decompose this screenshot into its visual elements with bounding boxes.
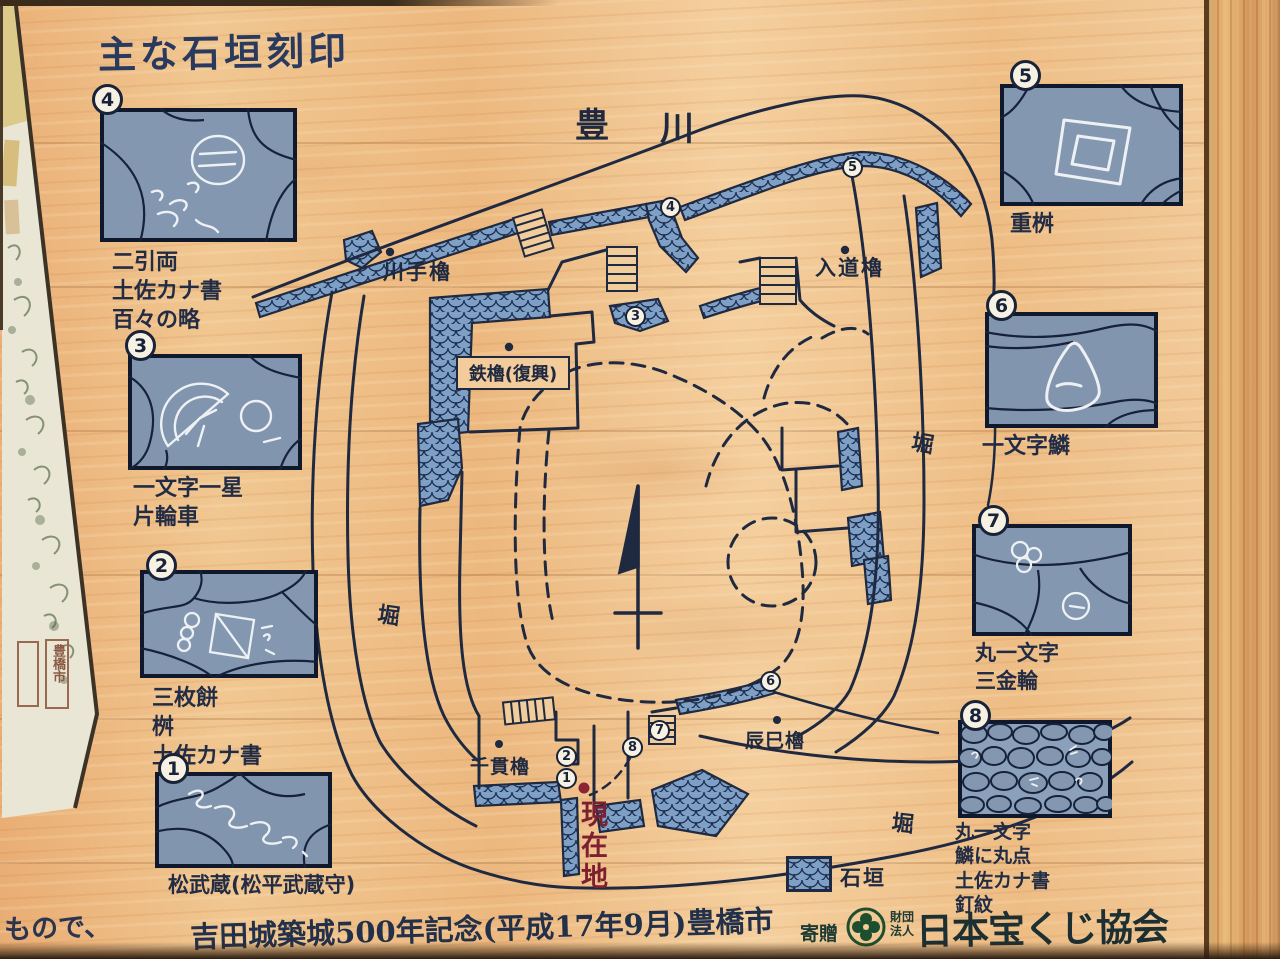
panel-4-label: 土佐カナ書 bbox=[112, 277, 222, 306]
board-bottom-edge bbox=[0, 942, 1280, 959]
panel-2-number: 2 bbox=[146, 550, 177, 581]
map-marker-5: 5 bbox=[842, 157, 863, 178]
panel-7-stone bbox=[972, 524, 1132, 636]
stairs-icon bbox=[503, 697, 555, 724]
tatsumi-tower-label: 辰巳櫓 bbox=[745, 726, 805, 753]
adjacent-sign-seal-text: 豊橋市 bbox=[48, 644, 67, 683]
panel-7-number: 7 bbox=[978, 505, 1009, 536]
stairs-icon bbox=[760, 258, 796, 304]
kurogane-tower-dot bbox=[505, 343, 513, 351]
adjacent-sign-edge bbox=[0, 0, 110, 860]
nyudo-tower-label: 入道櫓 bbox=[815, 252, 884, 282]
kurogane-tower-labelbox: 鉄櫓(復興) bbox=[456, 356, 570, 390]
river-name-char2: 川 bbox=[660, 101, 694, 150]
north-arrow-icon bbox=[615, 486, 661, 648]
map-marker-8: 8 bbox=[622, 737, 643, 758]
panel-2-label: 三枚餅 bbox=[152, 684, 262, 713]
stairs-icon bbox=[607, 247, 637, 291]
adjacent-text-fragment: もので、 bbox=[3, 904, 111, 947]
kawate-tower-label: 川手櫓 bbox=[383, 256, 452, 286]
panel-5-label: 重桝 bbox=[1010, 210, 1054, 239]
current-location-label: 現在地 bbox=[572, 800, 611, 893]
foundation-line2: 法人 bbox=[890, 925, 914, 939]
map-marker-3: 3 bbox=[625, 306, 646, 327]
panel-7-label: 三金輪 bbox=[975, 668, 1059, 696]
panel-3-label: 一文字一星 bbox=[133, 474, 243, 503]
kurogane-tower-label: 鉄櫓(復興) bbox=[469, 360, 557, 386]
foundation-label: 財団 法人 bbox=[890, 911, 914, 939]
panel-1-stone bbox=[155, 772, 332, 868]
tatsumi-tower-dot bbox=[773, 716, 781, 724]
moat-label-bottom: 堀 bbox=[890, 805, 915, 839]
panel-2-label: 桝 bbox=[152, 713, 262, 742]
panel-4-number: 4 bbox=[92, 84, 123, 115]
page-title: 主な石垣刻印 bbox=[98, 20, 351, 79]
stairs-icon bbox=[513, 209, 553, 256]
panel-6-label: 一文字鱗 bbox=[982, 432, 1070, 461]
map-marker-2: 2 bbox=[556, 746, 577, 767]
sengan-tower-label: 千貫櫓 bbox=[470, 752, 530, 779]
river-name-char1: 豊 bbox=[575, 98, 609, 147]
panel-8-label: 鱗に丸点 bbox=[955, 844, 1050, 868]
wood-frame-right bbox=[1204, 0, 1280, 959]
panel-6-stone bbox=[985, 312, 1158, 428]
board-top-edge bbox=[0, 0, 560, 6]
map-marker-6: 6 bbox=[760, 671, 781, 692]
panel-6-number: 6 bbox=[986, 290, 1017, 321]
panel-4-stone bbox=[100, 108, 297, 242]
legend-stone-swatch bbox=[786, 856, 832, 896]
foundation-line1: 財団 bbox=[890, 911, 914, 925]
panel-5-number: 5 bbox=[1010, 60, 1041, 91]
legend-label: 石垣 bbox=[840, 862, 886, 892]
map-marker-7: 7 bbox=[649, 720, 670, 741]
sengan-tower-dot bbox=[495, 740, 503, 748]
panel-1-label: 松武蔵(松平武蔵守) bbox=[168, 872, 355, 900]
map-marker-1: 1 bbox=[556, 768, 577, 789]
panel-8-stone bbox=[958, 720, 1112, 818]
panel-1-number: 1 bbox=[158, 753, 189, 784]
moat-label-left: 堀 bbox=[376, 597, 402, 632]
kawate-tower-dot bbox=[386, 248, 394, 256]
panel-3-label: 片輪車 bbox=[133, 503, 243, 532]
panel-8-label: 丸一文字 bbox=[955, 820, 1050, 844]
current-location-dot bbox=[579, 783, 590, 794]
panel-8-number: 8 bbox=[960, 700, 991, 731]
map-marker-4: 4 bbox=[660, 197, 681, 218]
panel-4-label: 百々の略 bbox=[112, 306, 222, 335]
panel-4-label: 二引両 bbox=[112, 248, 222, 277]
panel-5-stone bbox=[1000, 84, 1183, 206]
panel-2-stone bbox=[140, 570, 318, 678]
panel-3-number: 3 bbox=[125, 330, 156, 361]
panel-7-label: 丸一文字 bbox=[975, 640, 1059, 668]
signboard-photo: 豊橋市 主な石垣刻印 4 二引両 土佐カナ書 百々の略 3 bbox=[0, 0, 1280, 959]
panel-8-label: 土佐カナ書 bbox=[955, 869, 1050, 893]
panel-3-stone bbox=[128, 354, 302, 470]
